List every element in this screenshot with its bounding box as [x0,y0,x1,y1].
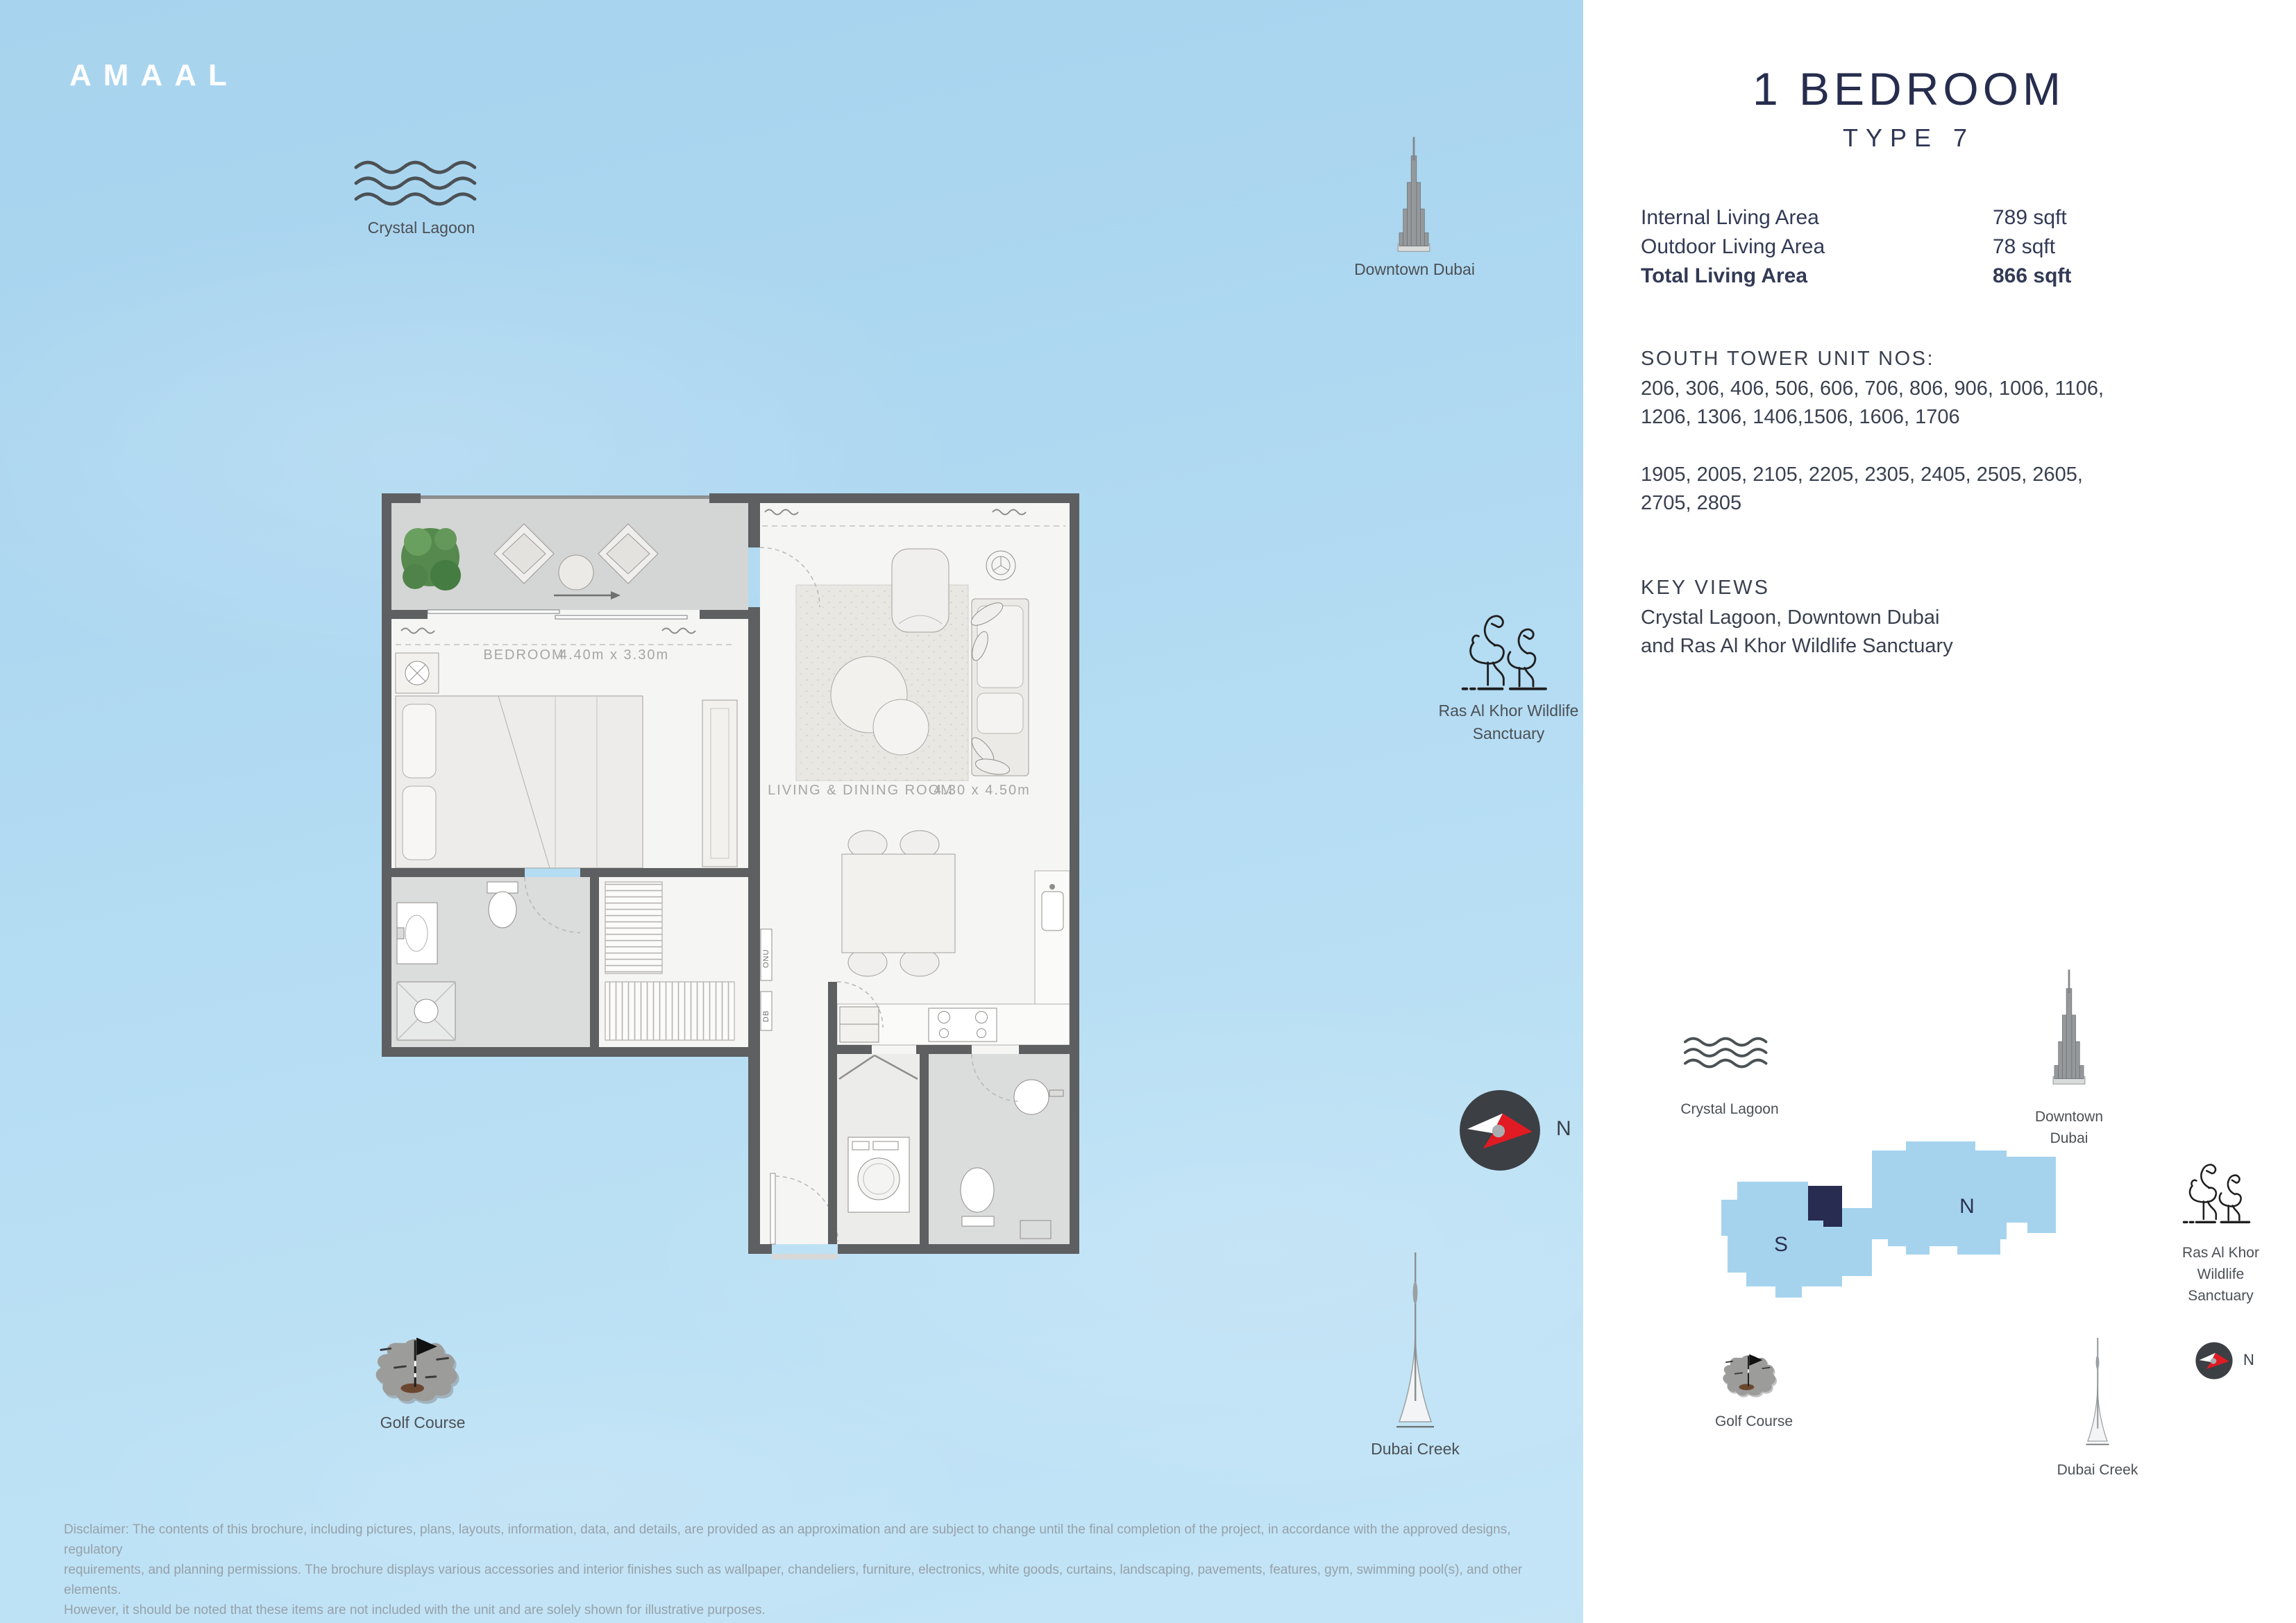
waves-icon [349,157,493,210]
sitemap-label: Golf Course [1702,1411,1806,1432]
creek-tower-icon [2081,1338,2114,1449]
page-subtitle: TYPE 7 [1662,124,2155,153]
disclaimer-line: requirements, and planning permissions. … [64,1560,1570,1600]
closet-db-label: DB [762,1010,770,1022]
sitemap-label: Dubai Creek [2045,1459,2150,1481]
landmark-label: Golf Course [370,1411,475,1434]
tower-footprints: S N [1721,1110,2110,1332]
units-heading: SOUTH TOWER UNIT NOS: [1641,345,1934,373]
living-room-label: LIVING & DINING ROOM [768,783,954,798]
landmark-downtown-dubai [1394,136,1434,259]
north-letter: N [1556,1117,1571,1141]
sitemap-golf-course [1720,1348,1787,1407]
sitemap-downtown-dubai [2049,969,2089,1091]
sitemap-label-line: Ras Al Khor [2167,1242,2274,1264]
landmark-dubai-creek [1396,1252,1434,1438]
waves-icon [1682,1027,1777,1078]
closet-onu-label: ONU [762,949,770,968]
key-views-heading: KEY VIEWS [1641,574,1770,602]
south-tower-footprint [1721,1182,1872,1298]
landmark-label: Downtown Dubai [1334,258,1495,281]
sitemap-label-line: Sanctuary [2167,1285,2274,1307]
bedroom-dimensions: 4.40m x 3.30m [559,647,669,663]
key-views-line: Crystal Lagoon, Downtown Dubai [1641,604,1953,632]
ceiling-fan-symbol [986,551,1015,580]
brochure-page: AMAAL Crystal Lagoon Downtown Dubai [0,0,2296,1623]
bed [396,696,643,868]
area-label: Total Living Area [1641,262,1993,291]
landmark-label: Ras Al Khor Wildlife Sanctuary [1427,699,1590,745]
area-label: Internal Living Area [1641,203,1993,232]
flamingos-icon [1459,600,1558,697]
golf-icon [371,1332,474,1410]
north-letter: N [2243,1351,2254,1369]
page-title: 1 BEDROOM [1662,62,2155,115]
flamingos-icon [2181,1149,2259,1231]
creek-tower-icon [1396,1252,1434,1435]
key-views-line: and Ras Al Khor Wildlife Sanctuary [1641,632,1953,661]
sitemap-crystal-lagoon [1682,1027,1777,1082]
bedroom-label: BEDROOM [483,647,564,663]
golf-icon [1720,1348,1787,1404]
landmark-crystal-lagoon [349,157,493,213]
brand-logo: AMAAL [69,58,239,93]
units-line: 206, 306, 406, 506, 606, 706, 806, 906, … [1641,375,2104,403]
area-value: 866 sqft [1993,262,2071,291]
units-list-group1: 206, 306, 406, 506, 606, 706, 806, 906, … [1641,375,2104,432]
balcony-plant [401,528,461,590]
units-line: 2705, 2805 [1641,489,2083,518]
sitemap-label: Ras Al Khor Wildlife Sanctuary [2167,1242,2274,1307]
nightstand [396,653,439,693]
area-value: 78 sqft [1993,232,2055,262]
site-plan: S N [1721,1110,2110,1336]
units-line: 1206, 1306, 1406,1506, 1606, 1706 [1641,403,2104,432]
compass-icon [2195,1341,2234,1380]
compass [1458,1088,1542,1176]
landmark-ras-al-khor [1459,600,1558,700]
burj-khalifa-icon [1394,136,1434,255]
sitemap-compass [2195,1341,2234,1384]
disclaimer-line: Disclaimer: The contents of this brochur… [64,1520,1570,1560]
landmark-golf-course [371,1332,474,1413]
units-list-group2: 1905, 2005, 2105, 2205, 2305, 2405, 2505… [1641,461,2083,518]
units-line: 1905, 2005, 2105, 2205, 2305, 2405, 2505… [1641,461,2083,489]
area-row: Internal Living Area 789 sqft [1641,203,2189,232]
sitemap-label-line: Wildlife [2167,1264,2274,1285]
utility-closets: ONU DB [761,929,772,1030]
dresser [702,700,737,867]
landmark-label: Crystal Lagoon [346,216,497,239]
compass-icon [1458,1088,1542,1173]
area-row: Outdoor Living Area 78 sqft [1641,232,2189,262]
landmark-label: Dubai Creek [1360,1438,1470,1461]
sitemap-ras-al-khor [2181,1149,2259,1234]
floor-plan-drawing: BEDROOM 4.40m x 3.30m ONU DB [382,488,1079,1259]
area-value: 789 sqft [1993,203,2067,232]
disclaimer: Disclaimer: The contents of this brochur… [64,1520,1570,1620]
area-row-total: Total Living Area 866 sqft [1641,262,2189,291]
area-label: Outdoor Living Area [1641,232,1993,262]
sofa [968,599,1029,777]
area-table: Internal Living Area 789 sqft Outdoor Li… [1641,203,2189,291]
sitemap-dubai-creek [2081,1338,2114,1452]
landmark-label-line: Ras Al Khor Wildlife [1427,699,1590,722]
burj-khalifa-icon [2049,969,2089,1088]
armchair [892,549,949,632]
living-room-dimensions: 4.30 x 4.50m [934,783,1031,798]
landmark-label-line: Sanctuary [1427,722,1590,745]
floor-plan: BEDROOM 4.40m x 3.30m ONU DB [382,488,1079,1263]
north-tower-letter: N [1959,1195,1975,1218]
key-views-text: Crystal Lagoon, Downtown Dubai and Ras A… [1641,604,1953,661]
south-tower-letter: S [1774,1233,1788,1256]
disclaimer-line: However, it should be noted that these i… [64,1600,1570,1620]
